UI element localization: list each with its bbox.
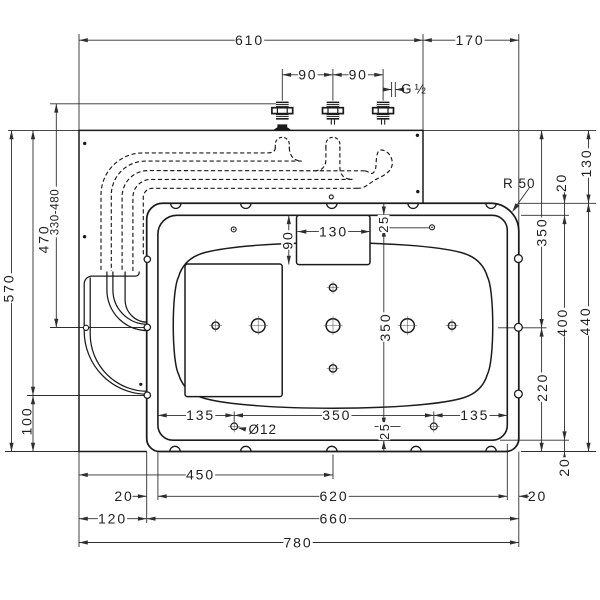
svg-text:20: 20	[114, 488, 133, 504]
svg-text:25: 25	[376, 215, 391, 232]
svg-text:570: 570	[0, 273, 16, 302]
svg-text:220: 220	[534, 373, 550, 402]
svg-text:400: 400	[554, 308, 570, 337]
svg-text:135: 135	[460, 407, 489, 423]
svg-text:350: 350	[533, 217, 549, 246]
svg-text:20: 20	[553, 173, 569, 192]
svg-text:Ø12: Ø12	[249, 422, 278, 437]
svg-text:90: 90	[279, 230, 295, 249]
svg-text:330-480: 330-480	[49, 189, 61, 235]
svg-text:350: 350	[322, 407, 351, 423]
svg-text:120: 120	[98, 510, 127, 526]
svg-text:440: 440	[577, 306, 593, 335]
svg-text:20: 20	[556, 457, 572, 476]
svg-text:130: 130	[578, 148, 594, 177]
svg-text:135: 135	[186, 407, 215, 423]
svg-text:G ½: G ½	[401, 82, 426, 97]
svg-text:350: 350	[377, 312, 393, 341]
svg-text:100: 100	[18, 406, 34, 435]
svg-text:90: 90	[349, 67, 368, 83]
svg-text:90: 90	[298, 67, 317, 83]
svg-text:R 50: R 50	[503, 176, 536, 191]
svg-text:170: 170	[455, 32, 484, 48]
svg-text:25: 25	[377, 422, 392, 439]
svg-text:620: 620	[319, 488, 348, 504]
svg-text:450: 450	[186, 467, 215, 483]
svg-text:610: 610	[235, 32, 264, 48]
svg-text:660: 660	[319, 510, 348, 526]
svg-text:20: 20	[528, 488, 547, 504]
svg-text:130: 130	[319, 223, 348, 239]
svg-text:780: 780	[283, 534, 312, 550]
